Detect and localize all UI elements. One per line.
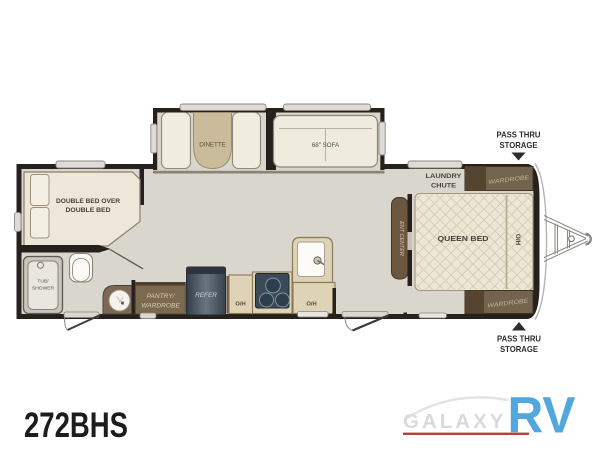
svg-text:CHUTE: CHUTE <box>431 183 457 190</box>
svg-text:REFER: REFER <box>195 292 217 299</box>
svg-text:DOUBLE BED: DOUBLE BED <box>66 207 111 214</box>
svg-text:RV: RV <box>508 387 576 444</box>
svg-text:TUB/: TUB/ <box>37 279 49 285</box>
svg-text:PASS THRU: PASS THRU <box>497 130 541 140</box>
svg-text:GALAXY: GALAXY <box>403 410 506 433</box>
svg-text:QUEEN BED: QUEEN BED <box>438 236 489 243</box>
svg-text:272BHS: 272BHS <box>24 406 128 445</box>
svg-text:68" SOFA: 68" SOFA <box>312 142 340 149</box>
svg-text:WARDROBE: WARDROBE <box>141 303 180 310</box>
svg-text:O/H: O/H <box>235 302 245 308</box>
svg-text:ENT CENTER: ENT CENTER <box>398 221 404 256</box>
svg-text:O/H: O/H <box>306 302 316 308</box>
svg-text:PANTRY/: PANTRY/ <box>147 293 176 300</box>
svg-text:SHOWER: SHOWER <box>32 286 54 292</box>
svg-text:DINETTE: DINETTE <box>199 142 225 149</box>
svg-text:LAUNDRY: LAUNDRY <box>426 173 463 180</box>
svg-text:STORAGE: STORAGE <box>500 344 538 354</box>
svg-text:STORAGE: STORAGE <box>500 140 538 150</box>
svg-text:PASS THRU: PASS THRU <box>497 334 541 344</box>
svg-text:DOUBLE BED OVER: DOUBLE BED OVER <box>56 198 120 205</box>
svg-text:O/H: O/H <box>514 234 521 246</box>
